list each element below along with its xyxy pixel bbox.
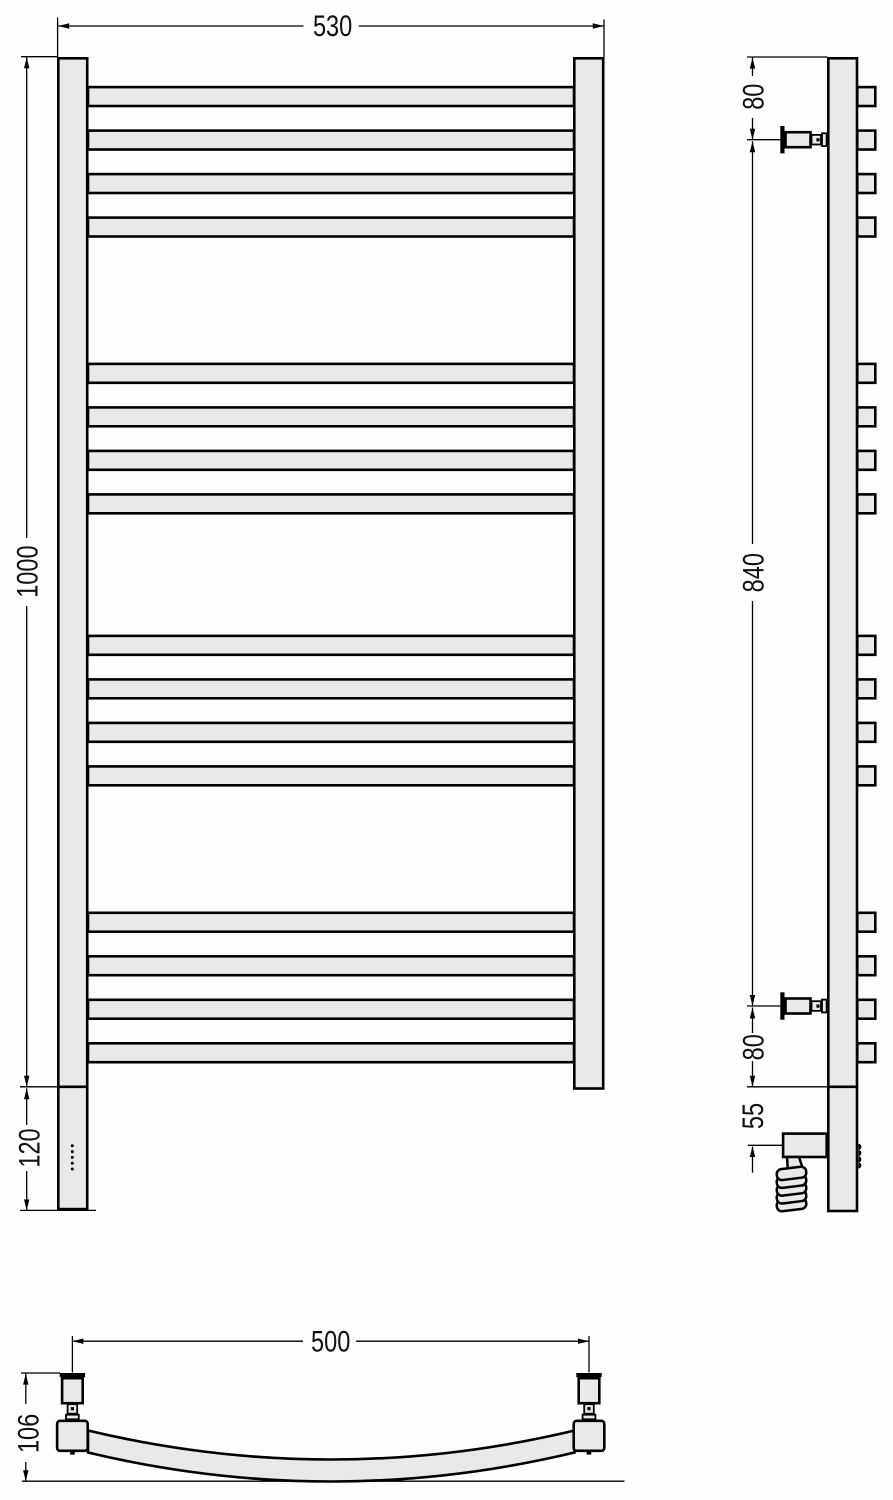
svg-text:1000: 1000 xyxy=(12,545,45,597)
svg-text:55: 55 xyxy=(737,1103,770,1129)
svg-text:106: 106 xyxy=(13,1414,46,1453)
svg-text:80: 80 xyxy=(737,84,770,110)
svg-text:500: 500 xyxy=(311,1325,350,1358)
svg-text:120: 120 xyxy=(13,1128,46,1167)
svg-text:80: 80 xyxy=(737,1034,770,1060)
svg-text:840: 840 xyxy=(737,553,770,592)
svg-text:530: 530 xyxy=(313,10,352,43)
